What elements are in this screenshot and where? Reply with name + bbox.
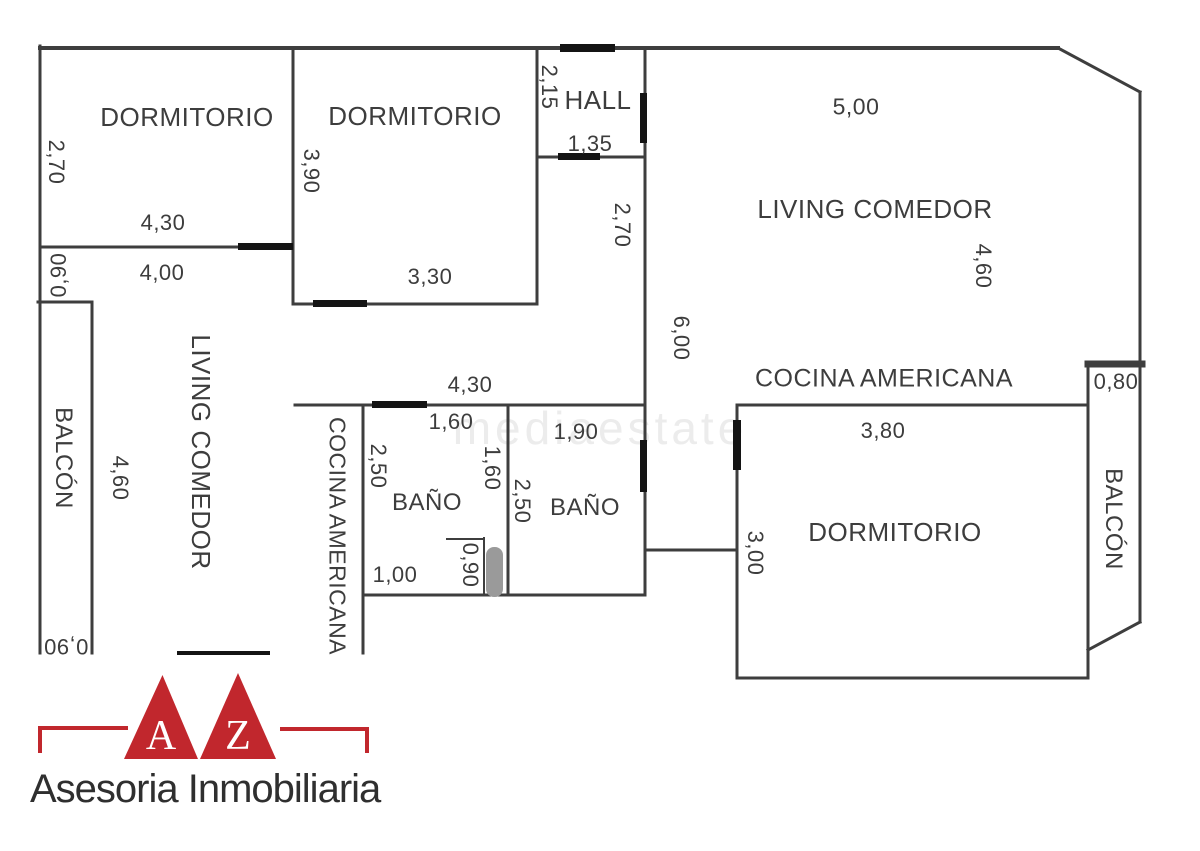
room-label-dormitorio-3: DORMITORIO: [808, 519, 982, 545]
door-marker: [560, 44, 615, 52]
dim-2-70-dorm1: 2,70: [45, 140, 67, 185]
dim-1-60-bano1: 1,60: [429, 411, 474, 433]
dim-0-90-shower: 0,90: [459, 543, 481, 588]
dim-4-60-living: 4,60: [972, 244, 994, 289]
room-label-bano-1: BAÑO: [392, 491, 462, 515]
dim-1-35-hall: 1,35: [568, 133, 613, 155]
dim-3-00-dorm3: 3,00: [744, 531, 766, 576]
dim-1-90-bano2: 1,90: [554, 421, 599, 443]
dim-6-00-living: 6,00: [670, 316, 692, 361]
door-marker: [313, 300, 367, 307]
door-marker: [733, 420, 741, 470]
dim-2-50-bano2: 2,50: [511, 479, 533, 524]
dim-2-50-bano1: 2,50: [367, 444, 389, 489]
door-marker: [640, 93, 647, 143]
dim-5-00-living: 5,00: [833, 96, 880, 119]
dim-4-00-passage: 4,00: [140, 262, 185, 284]
room-label-dormitorio-2: DORMITORIO: [328, 103, 502, 129]
shower-fixture: [486, 547, 503, 597]
dim-0-80-balcon: 0,80: [1094, 371, 1139, 393]
wall-segment: [1058, 48, 1140, 92]
floor-plan: mediaestate DORMITORIO2,704,300,904,00DO…: [0, 0, 1200, 851]
room-label-cocina-americana-left: COCINA AMERICANA: [326, 417, 349, 655]
room-label-balcon-left: BALCÓN: [51, 407, 75, 509]
room-label-dormitorio-1: DORMITORIO: [100, 104, 274, 130]
dim-4-60-left: 4,60: [109, 456, 131, 501]
wall-segment: [1088, 622, 1140, 650]
room-label-living-comedor-left: LIVING COMEDOR: [188, 334, 214, 569]
room-label-hall: HALL: [564, 87, 631, 113]
dim-3-80-dorm3: 3,80: [861, 420, 906, 442]
door-marker: [372, 401, 427, 408]
dim-4-30-bath-block: 4,30: [448, 374, 493, 396]
door-marker: [238, 243, 293, 250]
door-marker: [177, 651, 270, 655]
dim-4-30-dorm1: 4,30: [141, 212, 186, 234]
dim-3-90-dorm2: 3,90: [300, 149, 322, 194]
dim-1-60-bano1-v: 1,60: [481, 446, 503, 491]
dim-1-00-bano1: 1,00: [373, 564, 418, 586]
dim-3-30-dorm2: 3,30: [408, 266, 453, 288]
dim-0-90-balcon-left: 0,90: [44, 635, 89, 657]
dim-2-15-hall: 2,15: [538, 65, 560, 110]
dim-0-90-passage: 0,90: [48, 253, 70, 298]
door-marker: [640, 440, 647, 492]
dim-2-70-corridor: 2,70: [611, 203, 633, 248]
room-label-bano-2: BAÑO: [550, 496, 620, 520]
floor-plan-page: mediaestate DORMITORIO2,704,300,904,00DO…: [0, 0, 1200, 851]
room-label-cocina-americana-right: COCINA AMERICANA: [755, 367, 1013, 392]
room-label-living-comedor-right: LIVING COMEDOR: [757, 196, 992, 222]
room-label-balcon-right: BALCÓN: [1101, 468, 1125, 570]
